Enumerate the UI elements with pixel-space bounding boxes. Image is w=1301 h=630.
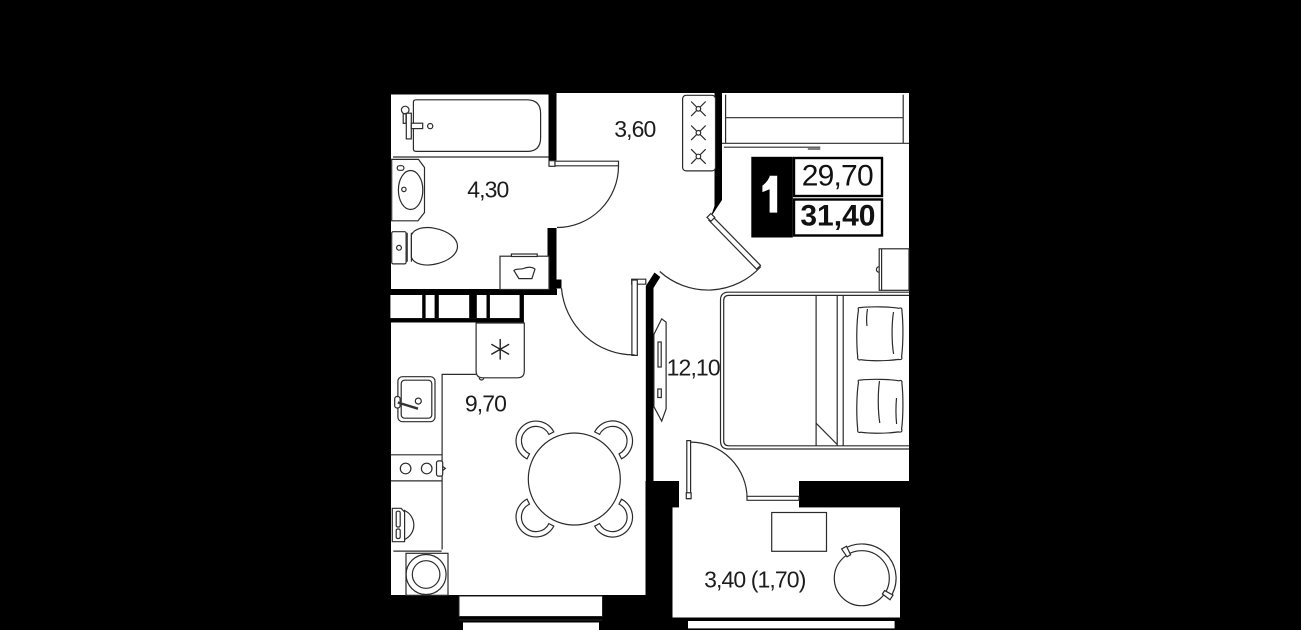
svg-text:29,70: 29,70: [802, 160, 873, 193]
svg-text:9,70: 9,70: [465, 390, 506, 416]
svg-text:3,40 (1,70): 3,40 (1,70): [704, 567, 806, 593]
svg-text:3,60: 3,60: [614, 116, 655, 142]
svg-text:12,10: 12,10: [667, 355, 720, 381]
svg-text:4,30: 4,30: [467, 176, 508, 202]
svg-text:31,40: 31,40: [800, 200, 875, 233]
